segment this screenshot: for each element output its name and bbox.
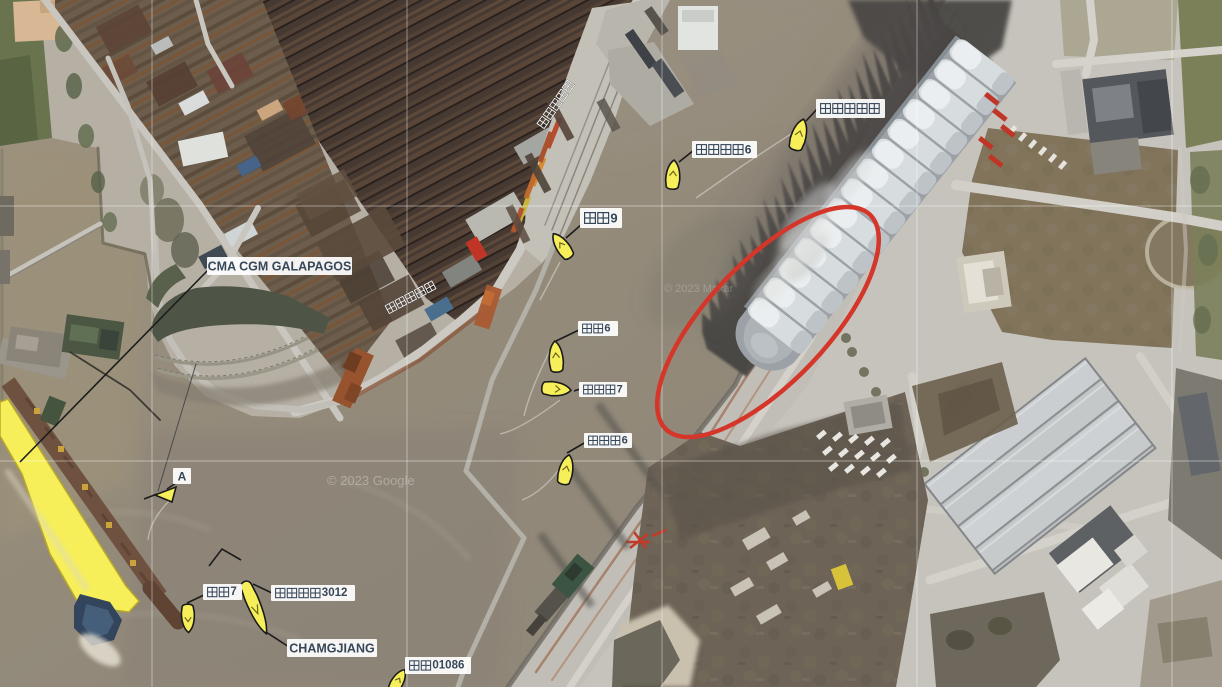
svg-text:3012: 3012 bbox=[322, 587, 348, 599]
svg-text:A: A bbox=[178, 470, 187, 484]
svg-text:9: 9 bbox=[610, 211, 617, 226]
svg-text:7: 7 bbox=[230, 586, 236, 598]
svg-text:7: 7 bbox=[617, 384, 623, 396]
svg-text:© 2023 Google: © 2023 Google bbox=[327, 473, 415, 488]
svg-text:CHAMGJIANG: CHAMGJIANG bbox=[289, 642, 374, 656]
svg-text:6: 6 bbox=[745, 143, 752, 157]
svg-text:01086: 01086 bbox=[432, 660, 464, 672]
svg-text:6: 6 bbox=[604, 323, 610, 335]
svg-text:6: 6 bbox=[622, 435, 628, 447]
svg-text:CMA CGM GALAPAGOS: CMA CGM GALAPAGOS bbox=[208, 260, 352, 274]
